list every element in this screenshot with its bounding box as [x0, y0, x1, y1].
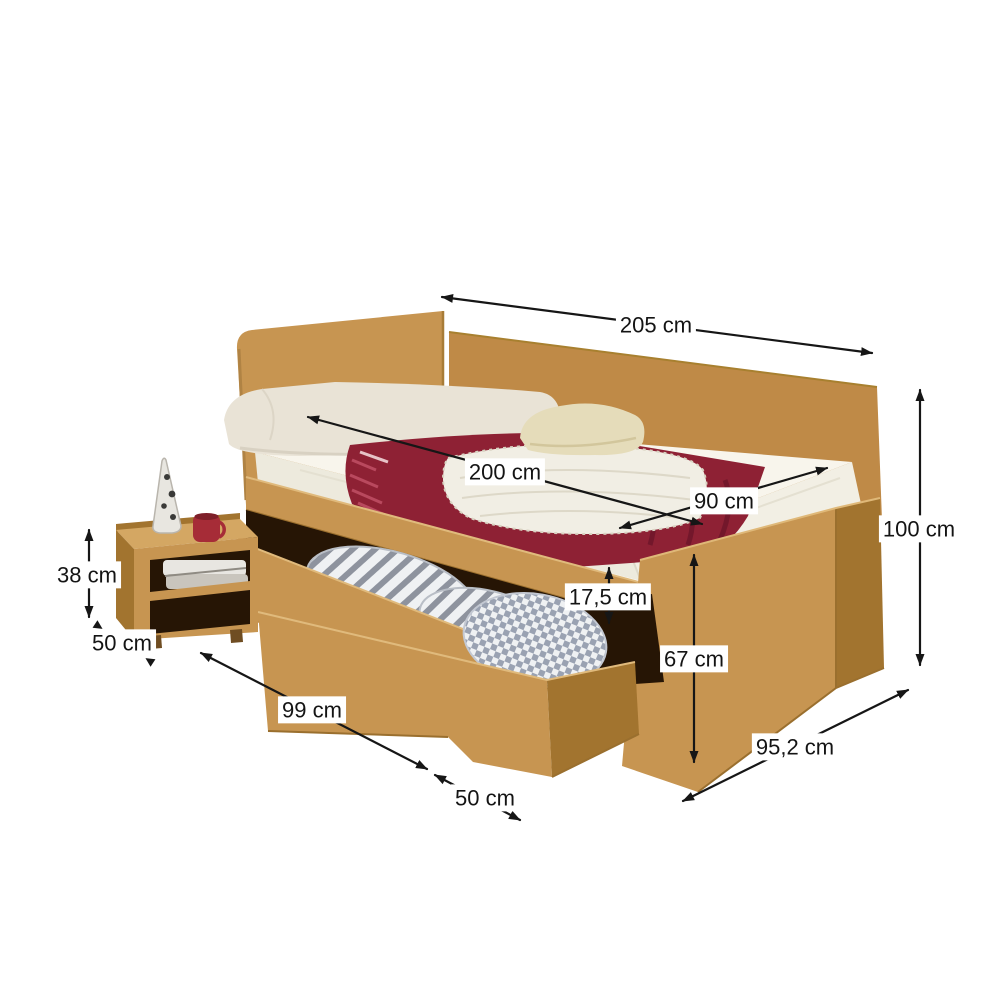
nightstand-foot-right — [230, 629, 243, 643]
dim-label-mattress-length: 200 cm — [465, 458, 545, 485]
dim-label-bed-depth: 95,2 cm — [752, 733, 838, 760]
dim-label-rail-height: 17,5 cm — [565, 583, 651, 610]
dim-label-overall-height: 100 cm — [879, 515, 959, 542]
dim-label-drawer-depth: 50 cm — [451, 784, 519, 811]
dim-label-nightstand-depth: 50 cm — [88, 629, 156, 656]
dim-label-mattress-width: 90 cm — [690, 487, 758, 514]
vase — [153, 458, 181, 533]
bed-dimension-diagram: 205 cm 200 cm 90 cm 100 cm 38 cm 50 cm 9… — [0, 0, 1000, 1000]
dim-label-side-panel-height: 67 cm — [660, 645, 728, 672]
furniture-illustration — [0, 0, 1000, 1000]
dim-label-drawer-front-length: 99 cm — [278, 696, 346, 723]
dim-label-nightstand-height: 38 cm — [53, 561, 121, 588]
dim-label-total-length: 205 cm — [616, 311, 696, 338]
